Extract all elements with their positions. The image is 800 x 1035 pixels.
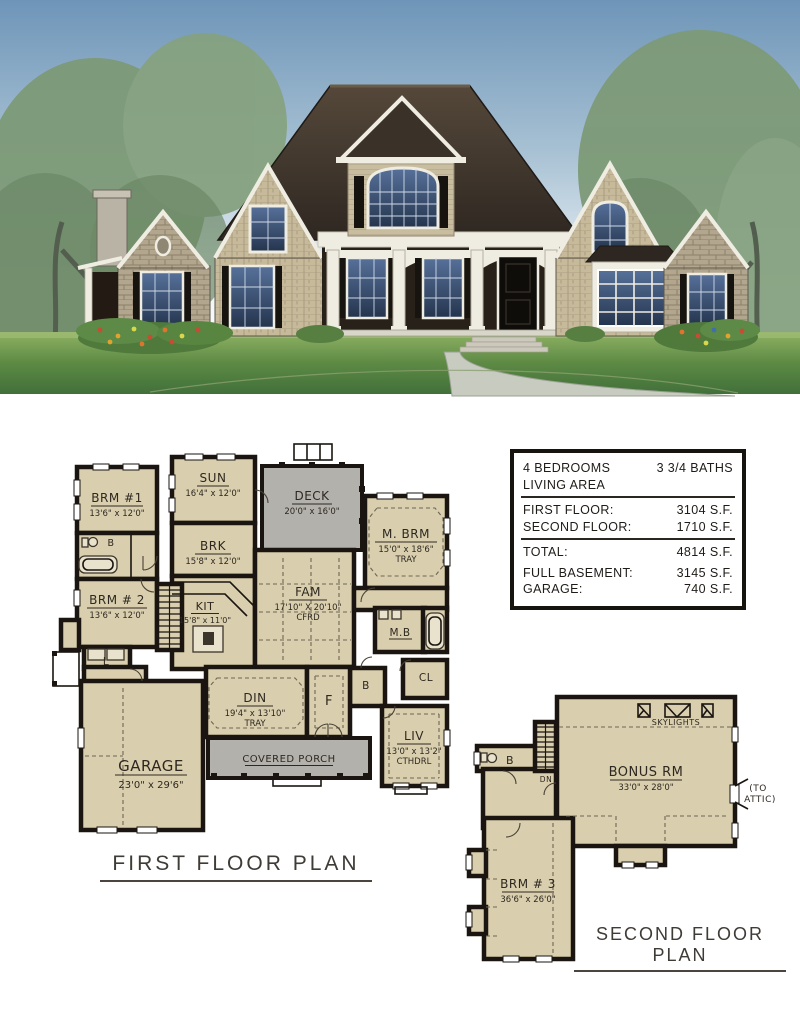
dims-liv: 13'0" x 13'2" xyxy=(386,747,441,757)
living-area-heading: LIVING AREA xyxy=(523,477,733,494)
dims-fam: 17'10" X 20'10" xyxy=(275,603,342,613)
label-brm3: BRM # 3 xyxy=(500,877,556,891)
label-brk: BRK xyxy=(200,539,227,553)
label-skylights: SKYLIGHTS xyxy=(652,718,700,727)
dims-mbrm: 15'0" x 18'6" xyxy=(378,545,433,555)
label-mbath: M.B xyxy=(389,627,410,639)
spec-row-second-floor: SECOND FLOOR: 1710 S.F. xyxy=(523,519,733,536)
divider xyxy=(521,538,735,540)
label-brm1: BRM #1 xyxy=(91,491,142,505)
label-fam: FAM xyxy=(295,585,321,599)
label-bonus: BONUS RM xyxy=(609,765,684,780)
house-elevation-rendering xyxy=(0,0,800,398)
front-porch xyxy=(318,232,576,352)
label-deck: DECK xyxy=(294,489,330,503)
label-halfbath: B xyxy=(362,680,370,692)
label-to-attic-2: ATTIC) xyxy=(744,795,776,805)
dims-bonus: 33'0" x 28'0" xyxy=(618,783,673,793)
label-bath2: B xyxy=(506,754,514,767)
spec-row-garage: GARAGE: 740 S.F. xyxy=(523,581,733,598)
bedrooms-count: 4 BEDROOMS xyxy=(523,460,610,477)
room-liv xyxy=(382,706,447,786)
dims-garage: 23'0" x 29'6" xyxy=(118,780,183,791)
stairs-second-floor xyxy=(535,722,556,771)
label-brm2: BRM # 2 xyxy=(89,593,145,607)
note-din: TRAY xyxy=(243,719,266,729)
porch-window-right xyxy=(415,258,471,318)
spec-bedrooms-baths: 4 BEDROOMS 3 3/4 BATHS xyxy=(523,460,733,477)
note-mbrm: TRAY xyxy=(394,555,417,565)
second-floor-plan-title: SECOND FLOOR PLAN xyxy=(574,924,786,972)
dims-brk: 15'8" x 12'0" xyxy=(185,557,240,567)
note-liv: CTHDRL xyxy=(397,757,432,767)
label-to-attic-1: (TO xyxy=(749,784,767,794)
dims-din: 19'4" x 13'10" xyxy=(225,709,286,719)
label-garage: GARAGE xyxy=(118,757,184,775)
dims-brm3: 36'6" x 26'0" xyxy=(500,895,555,905)
label-din: DIN xyxy=(243,691,266,705)
label-kit: KIT xyxy=(196,600,215,613)
dims-sun: 16'4" x 12'0" xyxy=(185,489,240,499)
label-liv: LIV xyxy=(404,729,424,743)
label-foyer: F xyxy=(325,694,333,709)
label-porch: COVERED PORCH xyxy=(242,754,335,765)
divider xyxy=(521,496,735,498)
spec-row-basement: FULL BASEMENT: 3145 S.F. xyxy=(523,565,733,582)
label-sun: SUN xyxy=(200,471,227,485)
label-laundry: L xyxy=(103,656,109,668)
front-door xyxy=(498,256,538,332)
label-dn: DN xyxy=(540,775,552,784)
porch-window-left xyxy=(339,258,395,318)
spec-row-total: TOTAL: 4814 S.F. xyxy=(523,544,733,561)
first-floor-plan-title: FIRST FLOOR PLAN xyxy=(100,852,372,882)
dims-deck: 20'0" x 16'0" xyxy=(284,507,339,517)
dims-brm2: 13'6" x 12'0" xyxy=(89,611,144,621)
baths-count: 3 3/4 BATHS xyxy=(657,460,733,477)
label-mbrm: M. BRM xyxy=(382,527,430,541)
brm2-bay-window xyxy=(61,620,79,650)
dims-kit: 15'8" x 11'0" xyxy=(179,616,231,625)
label-closet: CL xyxy=(419,672,433,684)
bath2-fixtures xyxy=(481,753,497,763)
spec-table: 4 BEDROOMS 3 3/4 BATHS LIVING AREA FIRST… xyxy=(510,449,746,610)
note-fam: CFRD xyxy=(296,613,320,623)
spec-row-first-floor: FIRST FLOOR: 3104 S.F. xyxy=(523,502,733,519)
dims-brm1: 13'6" x 12'0" xyxy=(89,509,144,519)
first-floor-plan: BRM #1 SUN BRK KIT DECK FAM M. BRM BRM #… xyxy=(45,438,465,840)
side-stoop xyxy=(53,652,79,686)
label-bath: B xyxy=(107,538,114,549)
